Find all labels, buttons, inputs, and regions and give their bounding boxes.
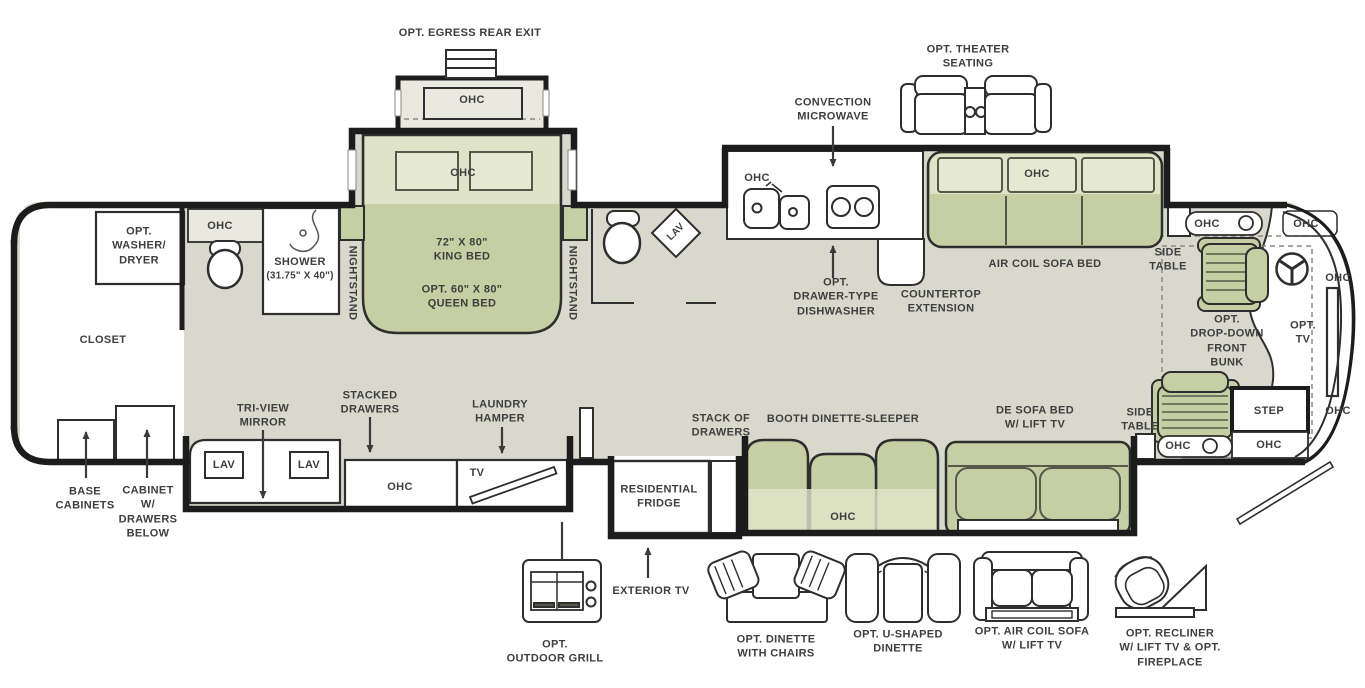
- king-bed: [363, 135, 561, 333]
- side-table-bottom: [1136, 434, 1155, 459]
- rv-floorplan: OPT. EGRESS REAR EXIT OPT. THEATER SEATI…: [0, 0, 1365, 688]
- speaker-icon: [1239, 216, 1253, 230]
- speaker-icon: [1203, 439, 1217, 453]
- ohc-laundry-cabinet: [345, 460, 457, 508]
- floorplan-drawing: [0, 0, 1365, 688]
- recliner-fireplace-icon: [1109, 550, 1206, 617]
- passenger-chair-icon: [1198, 238, 1268, 311]
- toilet-icon: [604, 211, 640, 263]
- bed-ohc-cabinet: [470, 152, 532, 190]
- nightstand-right: [563, 206, 587, 240]
- cabinet-with-drawers: [116, 406, 174, 460]
- bed-ohc-cabinet: [396, 152, 458, 190]
- countertop-extension: [878, 239, 924, 285]
- air-coil-sofa-bed: [928, 152, 1162, 247]
- theater-seating-icon: [901, 76, 1051, 134]
- entry-door-swing: [1237, 462, 1333, 524]
- shower: [263, 208, 339, 314]
- shower-drain-icon: [300, 230, 306, 236]
- dinette-with-chairs-icon: [706, 549, 847, 622]
- toilet-icon: [208, 241, 242, 288]
- steering-wheel-icon: [1277, 254, 1308, 285]
- stack-of-drawers-cabinet: [711, 461, 738, 533]
- booth-dinette: [746, 440, 938, 532]
- wall-pillar: [580, 408, 593, 458]
- entry-step: [1232, 388, 1308, 432]
- de-sofa-bed: [946, 442, 1130, 534]
- washer-dryer-cabinet: [96, 212, 184, 284]
- lav-sink: [205, 452, 243, 478]
- u-shaped-dinette-icon: [846, 554, 960, 622]
- opt-air-coil-sofa-icon: [974, 552, 1088, 621]
- opt-tv-bar: [1327, 288, 1338, 396]
- outdoor-grill-icon: [523, 560, 601, 622]
- cooktop-icon: [827, 186, 879, 228]
- ohc-under-step: [1232, 432, 1308, 458]
- egress-ohc-cabinet: [424, 88, 522, 119]
- nightstand-left: [340, 206, 364, 240]
- ohc-cabinet: [188, 209, 263, 242]
- egress-step-icon: [446, 50, 496, 78]
- residential-fridge-box: [613, 461, 709, 533]
- ohc-strip-front-bottom: [1158, 436, 1232, 457]
- lav-sink: [290, 452, 328, 478]
